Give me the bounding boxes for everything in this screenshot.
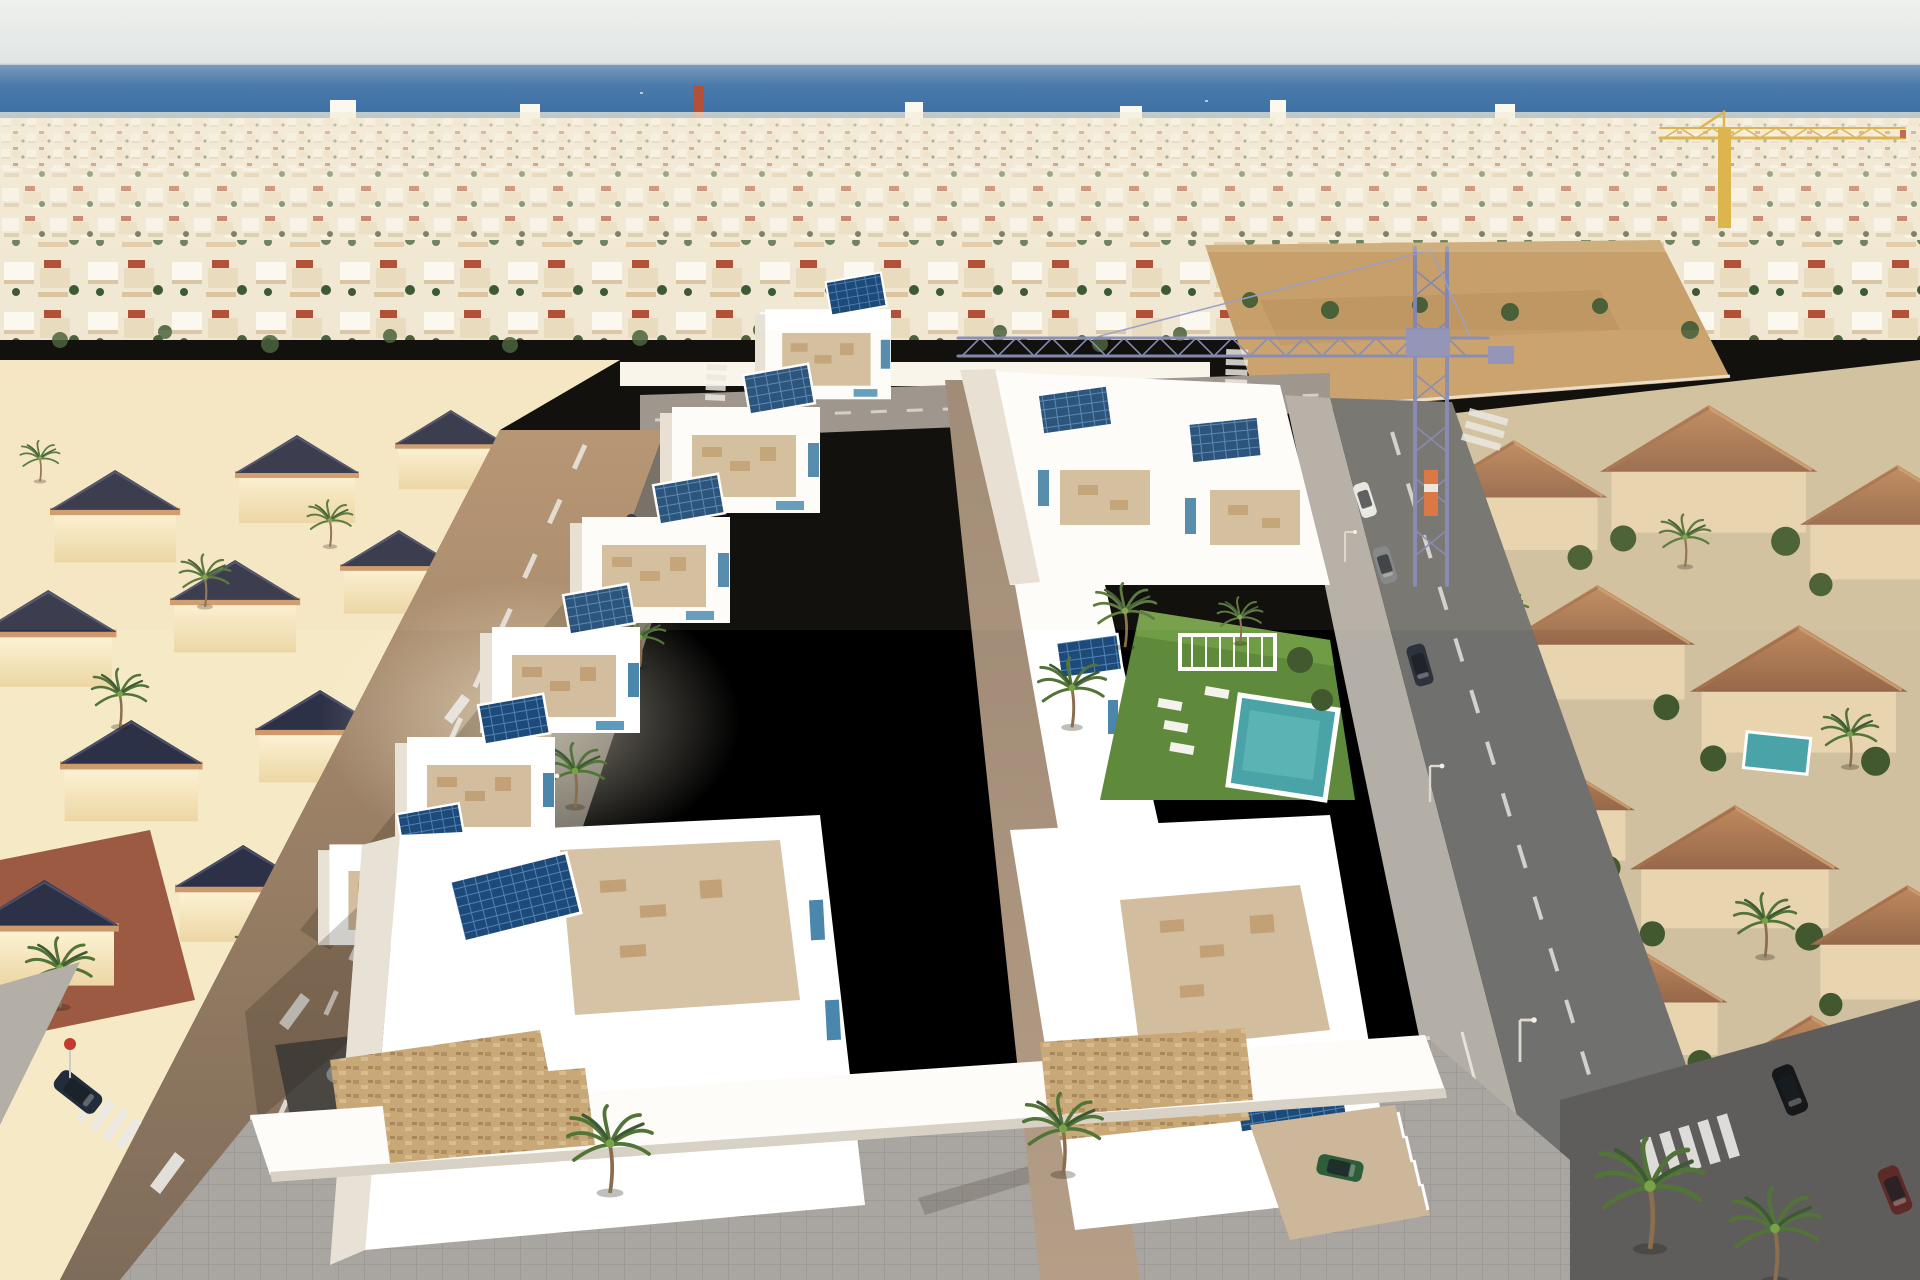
shrub: [1287, 647, 1313, 673]
roof-terrace: [560, 840, 800, 1015]
horizon-line: [0, 63, 1920, 65]
shrub: [1311, 689, 1333, 711]
scene-canvas: [0, 0, 1920, 1280]
solar-panel: [1056, 634, 1122, 678]
private-pool: [1743, 732, 1810, 774]
sky: [0, 0, 1920, 72]
aerial-render-image: [0, 0, 1920, 1280]
roof-terrace: [1120, 885, 1330, 1050]
distance-haze-overlay: [0, 112, 1920, 252]
warm-light-overlay: [0, 330, 1920, 630]
